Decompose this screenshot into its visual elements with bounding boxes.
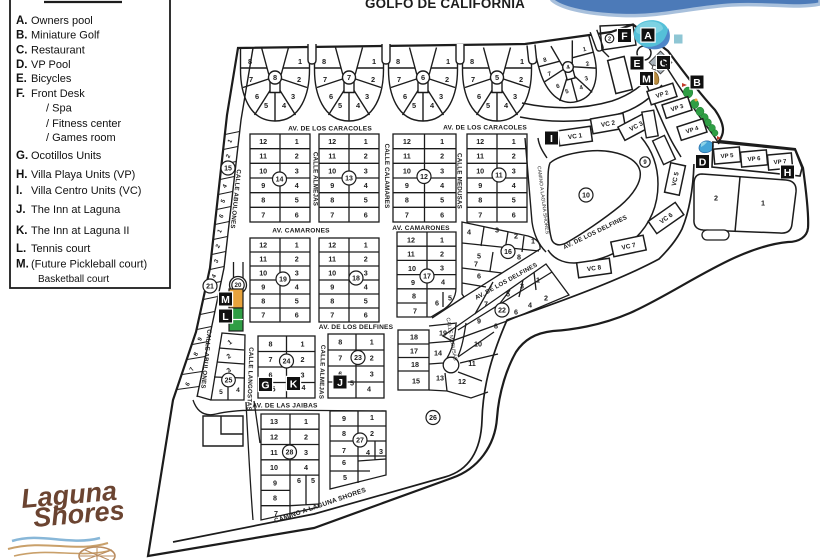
svg-text:2: 2 — [544, 294, 548, 303]
svg-text:H: H — [784, 167, 792, 179]
svg-text:6: 6 — [421, 73, 425, 82]
svg-text:12: 12 — [259, 241, 267, 250]
svg-text:AV. DE LOS DELFINES: AV. DE LOS DELFINES — [319, 324, 394, 331]
svg-text:2: 2 — [371, 75, 375, 84]
svg-text:12: 12 — [420, 174, 428, 181]
svg-text:11: 11 — [407, 250, 415, 259]
svg-text:5: 5 — [343, 473, 347, 482]
svg-text:9: 9 — [261, 283, 265, 292]
svg-text:8: 8 — [478, 196, 482, 205]
svg-text:7: 7 — [413, 307, 417, 316]
svg-text:12: 12 — [328, 241, 336, 250]
svg-text:B.: B. — [16, 30, 28, 42]
svg-text:7: 7 — [249, 75, 253, 84]
svg-text:J.: J. — [16, 204, 26, 216]
svg-text:8: 8 — [193, 351, 200, 357]
svg-text:7: 7 — [471, 75, 475, 84]
svg-text:8: 8 — [330, 196, 334, 205]
svg-text:4: 4 — [211, 273, 218, 279]
svg-text:8: 8 — [273, 73, 277, 82]
svg-text:1: 1 — [761, 199, 765, 208]
svg-text:GOLFO DE CALIFORNIA: GOLFO DE CALIFORNIA — [365, 0, 525, 11]
svg-text:J: J — [337, 377, 343, 389]
svg-text:2: 2 — [714, 194, 718, 203]
svg-text:12: 12 — [476, 137, 484, 146]
svg-text:3: 3 — [364, 166, 368, 175]
svg-text:7: 7 — [405, 210, 409, 219]
svg-text:Basketball court: Basketball court — [38, 274, 109, 285]
svg-text:4: 4 — [367, 385, 371, 394]
svg-text:7: 7 — [474, 260, 478, 269]
svg-text:14: 14 — [276, 177, 284, 184]
svg-text:21: 21 — [206, 284, 214, 291]
svg-text:4: 4 — [504, 101, 509, 110]
svg-text:3: 3 — [214, 258, 221, 264]
svg-text:5: 5 — [364, 196, 368, 205]
svg-text:1: 1 — [536, 276, 540, 285]
svg-text:7: 7 — [330, 311, 334, 320]
svg-text:11: 11 — [259, 255, 267, 264]
svg-text:23: 23 — [354, 355, 362, 362]
svg-text:12: 12 — [403, 137, 411, 146]
svg-text:3: 3 — [439, 92, 443, 101]
svg-text:3: 3 — [365, 92, 369, 101]
svg-text:G.: G. — [16, 150, 28, 162]
svg-text:1: 1 — [370, 413, 374, 422]
svg-text:9: 9 — [273, 478, 277, 487]
svg-text:5: 5 — [295, 297, 299, 306]
svg-text:26: 26 — [429, 415, 437, 422]
svg-text:10: 10 — [408, 264, 416, 273]
svg-text:4: 4 — [430, 101, 435, 110]
svg-text:5: 5 — [311, 476, 315, 485]
svg-text:11: 11 — [328, 152, 336, 161]
svg-text:7: 7 — [261, 210, 265, 219]
svg-text:L.: L. — [16, 243, 26, 255]
svg-text:7: 7 — [261, 311, 265, 320]
svg-text:7: 7 — [478, 210, 482, 219]
svg-text:19: 19 — [279, 277, 287, 284]
svg-text:1: 1 — [440, 137, 444, 146]
svg-text:6: 6 — [364, 210, 368, 219]
svg-text:1: 1 — [295, 241, 299, 250]
svg-text:4: 4 — [356, 101, 361, 110]
svg-text:(Future Pickleball court): (Future Pickleball court) — [31, 259, 147, 271]
svg-text:2: 2 — [585, 61, 590, 68]
svg-text:2: 2 — [364, 152, 368, 161]
svg-text:6: 6 — [403, 92, 407, 101]
svg-text:3: 3 — [364, 269, 368, 278]
svg-text:M: M — [642, 73, 651, 85]
svg-text:VP Pool: VP Pool — [31, 59, 71, 71]
svg-text:8: 8 — [322, 57, 326, 66]
svg-text:K.: K. — [16, 225, 28, 237]
svg-text:8: 8 — [543, 57, 548, 64]
svg-text:1: 1 — [304, 417, 308, 426]
svg-text:4: 4 — [364, 283, 368, 292]
svg-text:3: 3 — [379, 447, 383, 456]
svg-text:1: 1 — [520, 57, 524, 66]
svg-text:10: 10 — [582, 193, 590, 200]
svg-text:4: 4 — [236, 387, 240, 394]
svg-text:4: 4 — [304, 463, 308, 472]
svg-text:1: 1 — [531, 236, 535, 245]
svg-text:E: E — [633, 58, 640, 70]
svg-text:6: 6 — [185, 381, 192, 387]
svg-text:15: 15 — [224, 166, 232, 173]
svg-text:AV. DE LOS CARACOLES: AV. DE LOS CARACOLES — [288, 125, 372, 132]
svg-text:Restaurant: Restaurant — [31, 45, 85, 57]
svg-text:1: 1 — [372, 57, 376, 66]
svg-text:11: 11 — [328, 255, 336, 264]
svg-text:3: 3 — [291, 92, 295, 101]
svg-text:2: 2 — [440, 152, 444, 161]
svg-text:7: 7 — [330, 210, 334, 219]
svg-text:1: 1 — [217, 228, 224, 234]
svg-text:Tennis court: Tennis court — [31, 243, 90, 255]
svg-text:11: 11 — [259, 152, 267, 161]
svg-text:9: 9 — [197, 336, 204, 342]
svg-text:10: 10 — [476, 166, 484, 175]
svg-text:5: 5 — [220, 198, 227, 204]
svg-text:6: 6 — [342, 458, 346, 467]
svg-text:17: 17 — [410, 347, 418, 356]
svg-text:I: I — [550, 133, 553, 145]
svg-text:3: 3 — [370, 370, 374, 379]
svg-text:6: 6 — [329, 92, 333, 101]
svg-text:4: 4 — [579, 85, 584, 92]
svg-text:8: 8 — [470, 57, 474, 66]
svg-text:H.: H. — [16, 169, 28, 181]
svg-text:1: 1 — [301, 339, 305, 348]
svg-text:Villa Playa Units (VP): Villa Playa Units (VP) — [31, 169, 135, 181]
svg-text:8: 8 — [269, 339, 273, 348]
svg-text:5: 5 — [412, 101, 416, 110]
svg-text:2: 2 — [445, 75, 449, 84]
svg-text:2: 2 — [304, 433, 308, 442]
svg-text:24: 24 — [283, 359, 291, 366]
svg-text:CALLE CALAMARES: CALLE CALAMARES — [383, 144, 390, 209]
svg-text:1: 1 — [582, 47, 587, 54]
svg-text:6: 6 — [514, 308, 518, 317]
svg-text:25: 25 — [225, 378, 233, 385]
svg-text:AV. CAMARONES: AV. CAMARONES — [272, 227, 330, 234]
svg-text:5: 5 — [264, 101, 268, 110]
svg-text:12: 12 — [270, 433, 278, 442]
svg-text:E.: E. — [16, 73, 27, 85]
svg-text:7: 7 — [397, 75, 401, 84]
svg-text:4: 4 — [295, 283, 299, 292]
svg-text:2: 2 — [226, 353, 233, 361]
svg-text:6: 6 — [512, 210, 516, 219]
svg-text:8: 8 — [261, 297, 265, 306]
svg-text:22: 22 — [498, 308, 506, 315]
svg-text:9: 9 — [477, 317, 481, 326]
svg-text:12: 12 — [407, 236, 415, 245]
svg-text:5: 5 — [486, 101, 490, 110]
svg-text:7: 7 — [547, 71, 552, 78]
svg-text:10: 10 — [270, 463, 278, 472]
svg-text:5: 5 — [495, 73, 499, 82]
svg-text:2: 2 — [370, 354, 374, 363]
svg-text:1: 1 — [227, 339, 234, 347]
svg-text:8: 8 — [330, 297, 334, 306]
svg-text:3: 3 — [584, 76, 589, 83]
svg-text:4: 4 — [364, 181, 368, 190]
svg-text:2: 2 — [608, 37, 611, 43]
svg-text:4: 4 — [222, 183, 229, 189]
svg-text:2: 2 — [514, 232, 518, 241]
svg-text:8: 8 — [517, 253, 521, 262]
svg-text:1: 1 — [227, 138, 234, 144]
svg-text:7: 7 — [347, 73, 351, 82]
svg-text:3: 3 — [512, 166, 516, 175]
svg-text:1: 1 — [364, 137, 368, 146]
svg-text:2: 2 — [440, 250, 444, 259]
svg-text:C.: C. — [16, 45, 28, 57]
svg-text:Owners pool: Owners pool — [31, 15, 93, 27]
svg-text:4: 4 — [467, 228, 471, 237]
svg-text:18: 18 — [352, 276, 360, 283]
svg-text:9: 9 — [411, 278, 415, 287]
svg-text:7: 7 — [269, 355, 273, 364]
svg-text:14: 14 — [434, 349, 442, 358]
svg-text:4: 4 — [528, 301, 532, 310]
svg-text:CALLE MEDUSAS: CALLE MEDUSAS — [455, 153, 462, 209]
svg-text:17: 17 — [423, 274, 431, 281]
svg-text:2: 2 — [297, 75, 301, 84]
svg-text:5: 5 — [448, 294, 452, 303]
svg-text:12: 12 — [328, 137, 336, 146]
svg-text:3: 3 — [520, 282, 524, 291]
svg-text:6: 6 — [295, 311, 299, 320]
svg-text:M: M — [221, 294, 230, 306]
svg-text:4: 4 — [282, 101, 287, 110]
svg-text:3: 3 — [304, 448, 308, 457]
svg-text:6: 6 — [295, 210, 299, 219]
svg-text:5: 5 — [440, 196, 444, 205]
svg-text:4: 4 — [366, 448, 370, 457]
svg-text:VP 6: VP 6 — [747, 156, 761, 163]
svg-text:11: 11 — [270, 448, 278, 457]
svg-text:AV. DE LAS JAIBAS: AV. DE LAS JAIBAS — [252, 402, 318, 409]
svg-text:2: 2 — [295, 255, 299, 264]
svg-text:16: 16 — [504, 249, 512, 256]
svg-text:Miniature Golf: Miniature Golf — [31, 30, 100, 42]
svg-text:10: 10 — [328, 166, 336, 175]
svg-text:28: 28 — [286, 450, 294, 457]
svg-text:6: 6 — [364, 311, 368, 320]
svg-text:D: D — [699, 156, 707, 168]
svg-text:5: 5 — [364, 297, 368, 306]
svg-text:6: 6 — [477, 272, 481, 281]
svg-text:1: 1 — [295, 137, 299, 146]
svg-text:9: 9 — [342, 414, 346, 423]
svg-text:7: 7 — [342, 446, 346, 455]
svg-text:7: 7 — [323, 75, 327, 84]
svg-text:D.: D. — [16, 59, 28, 71]
svg-text:CALLE ALMEJAS: CALLE ALMEJAS — [311, 152, 318, 206]
svg-text:2: 2 — [519, 75, 523, 84]
svg-text:Front Desk: Front Desk — [31, 88, 85, 100]
svg-text:8: 8 — [412, 292, 416, 301]
svg-text:13: 13 — [436, 374, 444, 383]
svg-text:12: 12 — [259, 137, 267, 146]
svg-text:13: 13 — [270, 417, 278, 426]
svg-text:K: K — [290, 378, 298, 390]
svg-text:A: A — [644, 30, 652, 42]
svg-text:15: 15 — [412, 377, 420, 386]
svg-text:8: 8 — [273, 494, 277, 503]
svg-text:1: 1 — [298, 57, 302, 66]
svg-text:5: 5 — [512, 196, 516, 205]
svg-text:11: 11 — [495, 173, 503, 180]
svg-text:5: 5 — [338, 101, 342, 110]
svg-text:7: 7 — [189, 366, 196, 372]
svg-text:8: 8 — [261, 196, 265, 205]
svg-text:6: 6 — [219, 213, 226, 219]
svg-text:1: 1 — [370, 338, 374, 347]
svg-text:2: 2 — [295, 152, 299, 161]
svg-text:11: 11 — [403, 152, 411, 161]
svg-text:10: 10 — [328, 269, 336, 278]
svg-text:4: 4 — [440, 181, 444, 190]
svg-text:12: 12 — [458, 377, 466, 386]
svg-text:8: 8 — [396, 57, 400, 66]
svg-text:/ Fitness center: / Fitness center — [46, 118, 122, 130]
svg-text:9: 9 — [330, 181, 334, 190]
svg-text:8: 8 — [494, 322, 498, 331]
svg-text:5: 5 — [506, 290, 510, 299]
svg-text:2: 2 — [370, 429, 374, 438]
svg-text:8: 8 — [342, 429, 346, 438]
svg-text:4: 4 — [302, 383, 306, 392]
svg-text:3: 3 — [440, 264, 444, 273]
svg-text:G: G — [261, 379, 269, 391]
svg-text:AV. CAMARONES: AV. CAMARONES — [392, 225, 450, 232]
svg-text:CALLE ABULONES: CALLE ABULONES — [229, 169, 242, 229]
svg-text:20: 20 — [235, 282, 242, 289]
svg-text:7: 7 — [484, 300, 488, 309]
svg-text:F.: F. — [16, 88, 25, 100]
svg-text:L: L — [222, 311, 229, 323]
svg-text:13: 13 — [345, 176, 353, 183]
svg-text:CALLE ALMEJAS: CALLE ALMEJAS — [317, 345, 326, 399]
svg-text:A.: A. — [16, 15, 28, 27]
svg-text:1: 1 — [446, 57, 450, 66]
svg-text:1: 1 — [440, 236, 444, 245]
svg-text:18: 18 — [411, 360, 419, 369]
svg-text:/ Spa: / Spa — [46, 103, 73, 115]
svg-text:27: 27 — [356, 438, 364, 445]
svg-text:B: B — [693, 77, 701, 89]
svg-text:3: 3 — [495, 226, 499, 235]
svg-text:2: 2 — [364, 255, 368, 264]
svg-text:7: 7 — [338, 354, 342, 363]
svg-text:1: 1 — [364, 241, 368, 250]
svg-text:2: 2 — [215, 243, 222, 249]
svg-text:CALLE LANGOSTAS: CALLE LANGOSTAS — [245, 347, 254, 411]
svg-text:5: 5 — [219, 389, 223, 396]
svg-text:3: 3 — [513, 92, 517, 101]
svg-text:10: 10 — [259, 166, 267, 175]
svg-text:5: 5 — [565, 89, 570, 96]
svg-text:2: 2 — [512, 152, 516, 161]
svg-text:10: 10 — [403, 166, 411, 175]
svg-text:Bicycles: Bicycles — [31, 73, 72, 85]
svg-text:VP 5: VP 5 — [720, 153, 734, 160]
svg-text:3: 3 — [440, 166, 444, 175]
svg-text:3: 3 — [295, 269, 299, 278]
svg-text:M.: M. — [16, 259, 29, 271]
svg-text:11: 11 — [468, 359, 476, 368]
svg-text:The Inn at Laguna II: The Inn at Laguna II — [31, 225, 129, 237]
svg-text:3: 3 — [295, 166, 299, 175]
svg-text:5: 5 — [295, 196, 299, 205]
svg-text:5: 5 — [350, 379, 354, 388]
svg-text:8: 8 — [405, 196, 409, 205]
svg-text:Ocotillos Units: Ocotillos Units — [31, 150, 102, 162]
svg-text:Villa Centro Units (VC): Villa Centro Units (VC) — [31, 185, 141, 197]
svg-text:6: 6 — [255, 92, 259, 101]
svg-text:8: 8 — [338, 338, 342, 347]
svg-text:2: 2 — [301, 355, 305, 364]
svg-text:9: 9 — [478, 181, 482, 190]
svg-text:2: 2 — [225, 153, 232, 159]
svg-text:F: F — [621, 30, 628, 42]
svg-text:11: 11 — [476, 152, 484, 161]
svg-text:1: 1 — [512, 137, 516, 146]
svg-text:10: 10 — [259, 269, 267, 278]
svg-text:I.: I. — [16, 185, 22, 197]
svg-text:9: 9 — [405, 181, 409, 190]
svg-text:6: 6 — [556, 83, 561, 90]
svg-text:6: 6 — [297, 476, 301, 485]
svg-text:9: 9 — [261, 181, 265, 190]
svg-text:AV. DE LOS CARACOLES: AV. DE LOS CARACOLES — [443, 124, 527, 131]
svg-text:/ Games room: / Games room — [46, 132, 116, 144]
svg-text:6: 6 — [435, 299, 439, 308]
svg-text:4: 4 — [441, 278, 445, 287]
svg-text:6: 6 — [477, 92, 481, 101]
svg-text:4: 4 — [512, 181, 516, 190]
svg-text:19: 19 — [439, 329, 447, 338]
svg-text:10: 10 — [474, 339, 482, 348]
svg-text:4: 4 — [295, 181, 299, 190]
svg-text:9: 9 — [330, 283, 334, 292]
svg-text:The Inn at Laguna: The Inn at Laguna — [31, 204, 121, 216]
svg-text:18: 18 — [410, 333, 418, 342]
svg-text:6: 6 — [440, 210, 444, 219]
